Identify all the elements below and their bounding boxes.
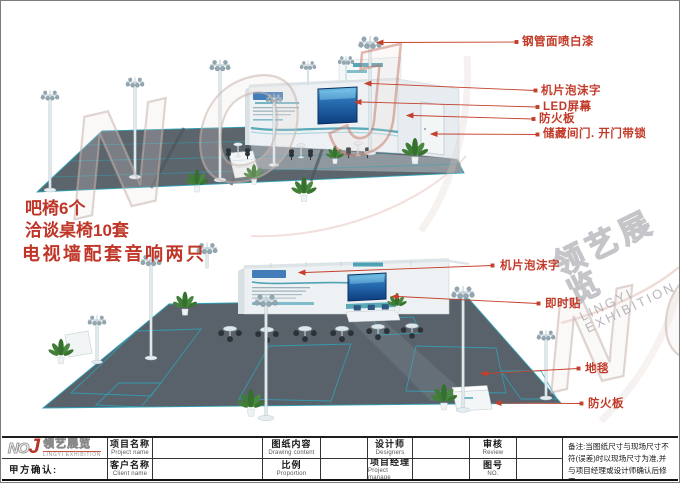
field-proportion-label: 比例Proportion: [263, 459, 321, 479]
booth-rendering-top: [37, 36, 464, 202]
logo-no: NO: [8, 440, 29, 457]
callout-fireproof-board-bottom: 防火板: [588, 397, 624, 411]
field-client-name-label: 客户名称Client name: [108, 459, 153, 479]
field-review-label: 审核Review: [470, 438, 517, 459]
logo-cn: 领艺展览: [43, 439, 101, 450]
field-project-manager-value: [413, 459, 470, 479]
drawing-sheet: NOJ NOJ 领艺展览 LINGYI EXHIBITION 吧椅6个 洽谈桌椅…: [0, 0, 680, 483]
field-project-manager-label: 项目经理Project manage: [368, 459, 413, 479]
field-review-value: [517, 438, 563, 459]
field-project-name-value: [153, 438, 263, 459]
drawing-area: NOJ NOJ 领艺展览 LINGYI EXHIBITION 吧椅6个 洽谈桌椅…: [1, 1, 679, 436]
booth-rendering-bottom: [43, 243, 561, 421]
callout-steel-pipe-paint: 钢管面喷白漆: [522, 35, 594, 49]
callout-carpet: 地毯: [585, 362, 609, 376]
party-a-confirm-label: 甲方确认:: [2, 459, 108, 479]
logo-en: LINGYI EXHIBITION: [43, 451, 101, 458]
callout-foam-letters-top: 机片泡沫字: [541, 84, 601, 98]
field-drawing-content-label: 图纸内容Drawing content: [263, 438, 321, 459]
booth-bottom-laptops: [354, 305, 389, 311]
note-tv-wall-speakers: 电视墙配套音响两只: [22, 240, 207, 266]
field-drawing-content-value: [321, 438, 368, 459]
booth-bottom-counter: [346, 310, 400, 322]
field-drawing-no-label: 图号NO.: [470, 459, 517, 479]
callout-sticker: 即时贴: [545, 297, 581, 311]
title-block-logo: NO J 领艺展览 LINGYI EXHIBITION: [2, 438, 108, 459]
field-client-name-value: [153, 459, 263, 479]
title-block-remark: 备注:当图纸尺寸与现场尺寸不符(误差)时以现场尺寸为准,并与项目经理或设计师确认…: [563, 438, 678, 479]
title-block: NO J 领艺展览 LINGYI EXHIBITION 项目名称Project …: [2, 436, 678, 481]
field-drawing-no-value: [517, 459, 563, 479]
logo-j-swoosh: J: [28, 438, 40, 459]
note-meeting-sets: 洽谈桌椅10套: [25, 216, 129, 241]
callout-fireproof-board-top: 防火板: [539, 112, 575, 126]
callout-foam-letters-bottom: 机片泡沫字: [500, 259, 560, 273]
field-project-name-label: 项目名称Project name: [108, 438, 153, 459]
field-proportion-value: [321, 459, 368, 479]
field-designer-value: [413, 438, 470, 459]
callout-storage-door: 储藏间门. 开门带锁: [543, 127, 646, 141]
field-designer-label: 设计师Designers: [368, 438, 413, 459]
